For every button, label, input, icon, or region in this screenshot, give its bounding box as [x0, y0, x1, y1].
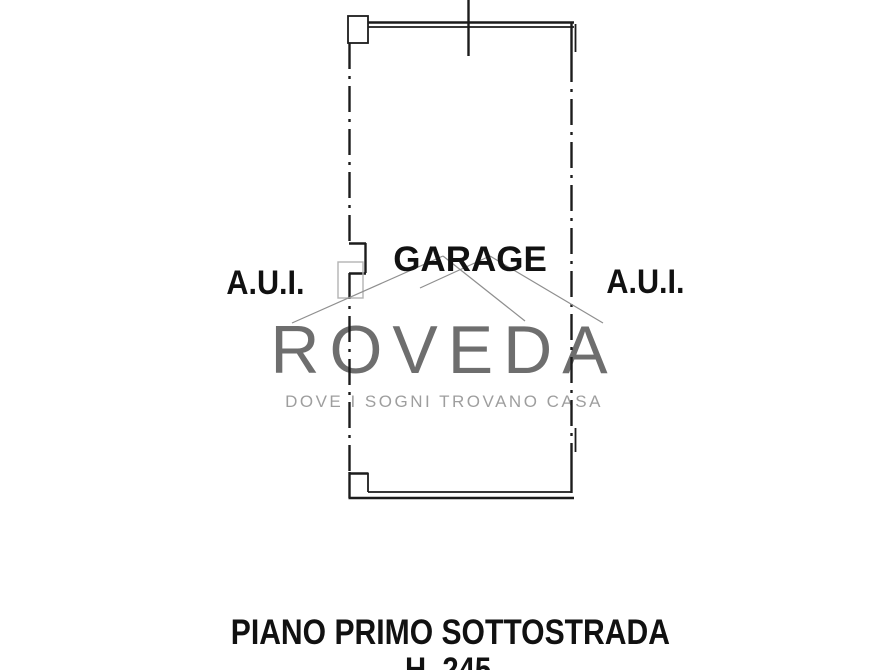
pillar-block: [348, 16, 368, 43]
floor-caption-height-note: H. 245: [148, 651, 748, 670]
right-wall: [572, 22, 576, 493]
top-wall: [368, 23, 574, 28]
bottom-left-step: [349, 472, 369, 498]
aui-right-room-label-text: A.U.I.: [606, 264, 684, 300]
bottom-wall: [349, 492, 575, 498]
aui-left-room-label-text: A.U.I.: [226, 265, 304, 301]
floor-caption-title: PIANO PRIMO SOTTOSTRADA: [150, 614, 750, 652]
garage-room-label: GARAGE: [370, 242, 570, 278]
floorplan-page: ROVEDA DOVE I SOGNI TROVANO CASA: [0, 0, 893, 670]
floorplan-drawing: [0, 0, 893, 670]
floor-caption-height-text: H. 245: [405, 651, 491, 670]
aui-left-room-label: A.U.I.: [165, 265, 365, 301]
aui-right-room-label: A.U.I.: [545, 264, 745, 300]
floor-caption-title-text: PIANO PRIMO SOTTOSTRADA: [230, 614, 669, 652]
